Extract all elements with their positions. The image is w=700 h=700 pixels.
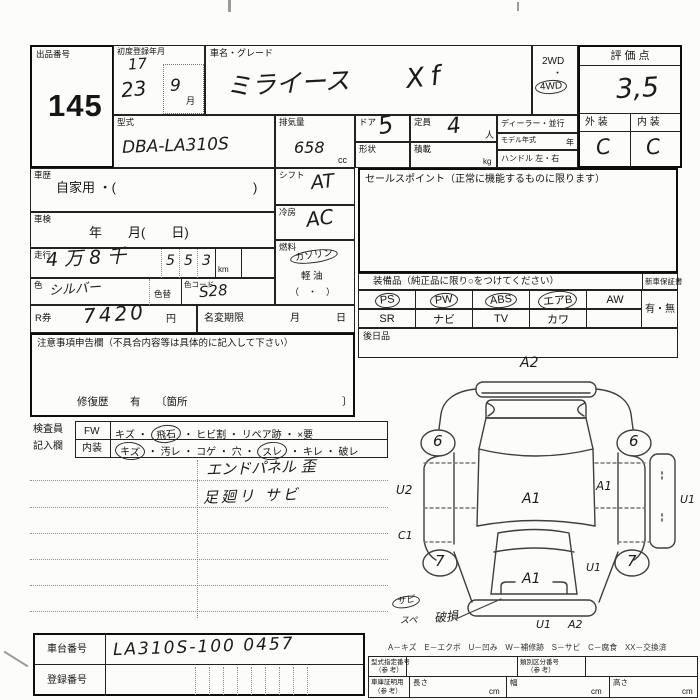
- mileage-digit-3: 3: [202, 254, 211, 268]
- first-registration-year: 23: [120, 78, 147, 101]
- interior-label: 内 装: [637, 117, 660, 128]
- capacity-cell: 定員 4 人: [410, 115, 497, 142]
- divider: [265, 667, 266, 695]
- inspector-label-2: 記入欄: [33, 441, 63, 452]
- fw-item: ヒビ割: [196, 430, 226, 441]
- load-cell: 積載 kg: [410, 142, 497, 168]
- equipment-label: 装備品（純正品に限り○をつけてください）: [373, 277, 559, 287]
- repair-location-close: 〕: [342, 397, 353, 409]
- type-designation-label: 型式指定番号: [371, 659, 410, 666]
- history-value: 自家用 ・(: [56, 181, 116, 195]
- interior-item: 穴: [232, 447, 242, 458]
- divider: [506, 676, 507, 698]
- diagram-wheel-rear-left: 7: [435, 554, 445, 569]
- divider: [237, 667, 238, 695]
- repair-history-value: 有: [130, 397, 141, 409]
- divider: [580, 65, 680, 66]
- divider: [517, 657, 518, 676]
- capacity-value: 4: [446, 115, 462, 138]
- history-label: 車歴: [34, 171, 51, 180]
- interior-grade: C: [645, 136, 662, 159]
- load-label: 積載: [414, 145, 431, 154]
- divider: [251, 667, 252, 695]
- mileage-handwritten: 4万8千: [46, 247, 133, 270]
- divider: [293, 667, 294, 695]
- load-unit: kg: [483, 158, 491, 167]
- diagram-note-under: スペ: [400, 617, 417, 626]
- garage-certificate-label: 車庫証明用: [371, 679, 404, 686]
- dealer-cell: ディーラー・並行: [497, 115, 578, 133]
- divider: [105, 635, 106, 696]
- later-items-box: 後日品: [358, 328, 678, 358]
- dealer-label: ディーラー・並行: [501, 120, 564, 129]
- shape-label: 形状: [359, 145, 376, 154]
- note-column-divider: [197, 460, 198, 618]
- ac-cell: 冷房 AC: [275, 205, 355, 240]
- displacement-label: 排気量: [279, 118, 305, 127]
- item-separator: ・: [290, 447, 300, 458]
- chassis-number-value: LA310S-100 0457: [113, 636, 295, 659]
- car-name: ミライース: [225, 68, 350, 99]
- color-cell: 色 シルバー 色替 色コード S28: [30, 278, 275, 305]
- car-outline-drawing: [388, 356, 700, 644]
- equipment-cell: エアB: [530, 291, 587, 309]
- handle-cell: ハンドル 左・右: [497, 150, 578, 168]
- shift-value: AT: [310, 172, 335, 193]
- equipment-sr: SR: [359, 310, 416, 328]
- diagram-label-u1-right: U1: [680, 494, 695, 505]
- equipment-pw-circled: PW: [430, 291, 459, 308]
- capacity-unit: 人: [485, 131, 494, 141]
- interior-row-label: 内装: [82, 443, 102, 454]
- car-damage-diagram: A2 6 6 U2 A1 U1 A1 C1 7 7 U1 A1 サビ スペ 破損…: [388, 356, 700, 644]
- divider: [630, 113, 631, 167]
- equipment-aw: AW: [606, 294, 623, 306]
- fw-item: ×要: [297, 430, 313, 441]
- exterior-label: 外 装: [585, 117, 608, 128]
- car-name-label: 車名・グレード: [210, 49, 273, 59]
- width-label: 幅: [510, 679, 518, 687]
- grade: Xf: [405, 62, 448, 93]
- diagram-label-u1-bottom: U1: [536, 619, 551, 630]
- equipment-cell: PS: [359, 291, 416, 309]
- shaken-label: 車検: [34, 215, 51, 224]
- shaken-cell: 車検 年 月( 日): [30, 212, 275, 248]
- shift-label: シフト: [279, 171, 305, 180]
- color-code-value: S28: [198, 283, 228, 300]
- note-line: [30, 611, 388, 612]
- item-separator: ・: [229, 430, 239, 441]
- repair-location-open: 〔箇所: [156, 397, 188, 409]
- interior-item: 破レ: [338, 447, 358, 458]
- item-separator: ・: [183, 430, 193, 441]
- score-label: 評 価 点: [580, 50, 680, 62]
- diagram-damage-note: 破損: [433, 610, 458, 624]
- divider: [223, 667, 224, 695]
- mileage-digit-1: 5: [166, 254, 175, 268]
- equipment-header-row: 装備品（純正品に限り○をつけてください） 新車保証書: [358, 273, 678, 290]
- fuel-cell: 燃料 ガソリン 軽 油 （ ・ ）: [275, 240, 355, 305]
- model-year-unit: 年: [566, 139, 574, 148]
- fw-item: リペア跡: [242, 430, 282, 441]
- interior-item-circled: キズ: [114, 441, 145, 462]
- fuel-label: 燃料: [279, 243, 296, 252]
- shaken-value: 年 月( 日): [89, 226, 189, 240]
- divider: [161, 249, 162, 278]
- capacity-label: 定員: [414, 118, 431, 127]
- auction-number-label: 出品番号: [36, 50, 70, 59]
- name-change-cell: 名変期限 月 日: [197, 305, 355, 333]
- model-label: 型式: [117, 118, 134, 127]
- equipment-leather: カワ: [530, 310, 587, 328]
- doors-value: 5: [376, 112, 395, 138]
- caution-box: 注意事項申告欄（不具合内容等は具体的に記入して下さい） 修復歴 有 〔箇所 〕: [30, 333, 355, 417]
- equipment-row-2: SR ナビ TV カワ: [358, 309, 642, 328]
- diagram-label-a1-right: A1: [596, 480, 612, 492]
- drive-separator: ・: [553, 69, 562, 79]
- divider: [279, 667, 280, 695]
- equipment-cell: PW: [416, 291, 473, 309]
- score-box: 評 価 点 3,5 外 装 内 装 C C: [578, 45, 682, 168]
- divider: [215, 249, 216, 278]
- divider: [110, 422, 111, 458]
- scan-mark: [517, 2, 519, 11]
- handle-label: ハンドル 左・右: [501, 155, 559, 164]
- sales-point-label: セールスポイント（正常に機能するものに限ります）: [365, 174, 605, 185]
- height-unit: cm: [682, 688, 693, 697]
- first-registration-month-box: 9 月: [163, 64, 204, 114]
- caution-header: 注意事項申告欄（不具合内容等は具体的に記入して下さい）: [37, 339, 293, 349]
- item-separator: ・: [219, 447, 229, 458]
- divider: [209, 667, 210, 695]
- fw-label: FW: [84, 426, 100, 437]
- name-change-label: 名変期限: [204, 313, 244, 324]
- first-registration-note: 17: [128, 56, 148, 72]
- color-label: 色: [34, 281, 43, 290]
- reference-note: （参 考）: [374, 688, 402, 695]
- fuel-paren: （ ・ ）: [290, 288, 335, 298]
- score-value: 3,5: [615, 74, 659, 103]
- doors-label: ドア: [359, 118, 376, 127]
- inspector-box: FW キズ ・ 飛石 ・ ヒビ割 ・ リペア跡 ・ ×要 内装 キズ ・ 汚レ …: [75, 421, 388, 458]
- note-line: [30, 480, 388, 481]
- length-label: 長さ: [413, 679, 428, 687]
- divider: [181, 279, 182, 305]
- car-name-cell: 車名・グレード ミライース Xf: [205, 45, 532, 115]
- reference-table: 型式指定番号 （参 考） 類別区分番号 （参 考） 車庫証明用 （参 考） 長さ…: [368, 656, 698, 698]
- shift-cell: シフト AT: [275, 168, 355, 205]
- equipment-ps-circled: PS: [374, 291, 400, 308]
- diagram-label-c1: C1: [398, 530, 413, 541]
- diagram-wheel-rear-right: 7: [627, 554, 637, 569]
- scan-mark: [228, 0, 231, 12]
- model-year-cell: モデル年式 年: [497, 133, 578, 150]
- exterior-grade: C: [595, 136, 612, 159]
- first-registration-month: 9: [170, 78, 181, 95]
- scan-mark: [4, 651, 29, 668]
- equipment-row-1: PS PW ABS エアB AW: [358, 290, 642, 309]
- chassis-number-label: 車台番号: [47, 644, 87, 655]
- divider: [35, 664, 363, 665]
- auction-number-box: 出品番号 145: [30, 45, 114, 168]
- item-separator: ・: [138, 430, 148, 441]
- registration-number-label: 登録番号: [47, 675, 87, 686]
- width-unit: cm: [591, 688, 602, 697]
- divider: [585, 657, 586, 676]
- recycle-ticket-cell: R券 7420 円: [30, 305, 197, 333]
- inspector-note-2: 足廻リ サビ: [203, 487, 301, 505]
- model-cell: 型式 DBA-LA310S: [113, 115, 275, 168]
- divider: [409, 676, 410, 698]
- equipment-empty-cell: [587, 310, 643, 328]
- drive-2wd: 2WD: [542, 56, 564, 67]
- diagram-label-u2: U2: [396, 484, 412, 496]
- recycle-ticket-amount: 7420: [82, 302, 146, 326]
- equipment-navi: ナビ: [416, 310, 473, 328]
- auction-sheet: 出品番号 145 初度登録年月 17 23 9 月 車名・グレード ミライース …: [0, 0, 700, 700]
- equipment-cell: ABS: [473, 291, 530, 309]
- height-label: 高さ: [613, 679, 628, 687]
- damage-code-legend: A－キズ E－エクボ U－凹み W－補修跡 S－サビ C－腐食 XX－交換済: [388, 644, 667, 653]
- diagram-label-a2-top: A2: [520, 356, 538, 370]
- divider: [197, 249, 198, 278]
- divider: [642, 274, 643, 290]
- fw-item: キズ: [115, 430, 135, 441]
- reference-note: （参 考）: [375, 667, 403, 674]
- later-items-label: 後日品: [363, 332, 390, 342]
- diagram-label-a2-bottom: A2: [568, 619, 583, 630]
- chassis-table: 車台番号 LA310S-100 0457 登録番号: [33, 633, 365, 696]
- displacement-cell: 排気量 658 cc: [275, 115, 355, 168]
- drive-4wd-circled: 4WD: [535, 79, 568, 95]
- ac-value: AC: [305, 206, 335, 230]
- fw-items: キズ ・ 飛石 ・ ヒビ割 ・ リペア跡 ・ ×要: [115, 425, 313, 443]
- note-line: [30, 559, 388, 560]
- recycle-ticket-label: R券: [35, 314, 51, 324]
- shape-cell: 形状: [355, 142, 410, 168]
- inspector-note-1: エンドパネル 歪: [206, 459, 316, 478]
- diagram-label-a1-rear: A1: [522, 572, 540, 586]
- divider: [149, 279, 150, 305]
- auction-number: 145: [48, 89, 103, 123]
- divider: [179, 249, 180, 278]
- sales-point-box: セールスポイント（正常に機能するものに限ります）: [358, 168, 678, 273]
- displacement-unit: cc: [338, 156, 347, 166]
- item-separator: ・: [326, 447, 336, 458]
- divider: [609, 676, 610, 698]
- divider: [580, 131, 680, 132]
- mileage-digit-2: 5: [184, 254, 193, 268]
- note-line: [30, 507, 388, 508]
- equipment-abs-circled: ABS: [484, 291, 517, 309]
- warranty-value: 有・無: [645, 304, 675, 315]
- displacement-value: 658: [294, 140, 325, 156]
- diagram-wheel-front-right: 6: [629, 434, 639, 449]
- classification-label: 類別区分番号: [520, 659, 559, 666]
- month-unit: 月: [186, 97, 195, 107]
- first-registration-cell: 初度登録年月 17 23 9 月: [113, 45, 205, 115]
- model-code: DBA-LA310S: [122, 136, 229, 157]
- history-close: ): [253, 181, 257, 195]
- interior-item: コゲ: [196, 447, 216, 458]
- mileage-cell: 走行 4万8千 5 5 3 km: [30, 248, 275, 278]
- note-line: [30, 585, 388, 586]
- divider: [195, 667, 196, 695]
- diagram-wheel-front-left: 6: [433, 434, 443, 449]
- diagram-label-a1-center: A1: [522, 492, 540, 506]
- warranty-label: 新車保証書: [645, 278, 683, 286]
- interior-item: 汚レ: [161, 447, 181, 458]
- recycle-ticket-unit: 円: [166, 314, 176, 325]
- divider: [369, 676, 697, 677]
- color-change-label: 色替: [154, 290, 171, 299]
- mileage-unit: km: [218, 266, 229, 275]
- fuel-gasoline-circled: ガソリン: [289, 247, 338, 267]
- item-separator: ・: [244, 447, 254, 458]
- name-change-day: 日: [336, 313, 346, 324]
- repair-history-label: 修復歴: [77, 397, 109, 409]
- warranty-value-cell: 有・無: [641, 290, 678, 328]
- item-separator: ・: [183, 447, 193, 458]
- length-unit: cm: [489, 688, 500, 697]
- model-year-label: モデル年式: [501, 137, 536, 145]
- ac-label: 冷房: [279, 208, 296, 217]
- equipment-tv: TV: [473, 310, 530, 328]
- inspector-label-1: 検査員: [33, 424, 63, 435]
- divider: [241, 249, 242, 278]
- item-separator: ・: [148, 447, 158, 458]
- equipment-airbag-circled: エアB: [538, 289, 579, 311]
- reference-note: （参 考）: [527, 667, 555, 674]
- history-cell: 車歴 自家用 ・( ): [30, 168, 275, 212]
- drive-type-cell: 2WD ・ 4WD: [532, 45, 578, 115]
- diagram-label-u1-mid: U1: [586, 562, 601, 573]
- fuel-diesel: 軽 油: [301, 272, 323, 282]
- name-change-month: 月: [290, 313, 300, 324]
- note-line: [30, 533, 388, 534]
- item-separator: ・: [284, 430, 294, 441]
- equipment-cell: AW: [587, 291, 643, 309]
- divider: [307, 667, 308, 695]
- interior-items: キズ ・ 汚レ ・ コゲ ・ 穴 ・ スレ ・ キレ ・ 破レ: [115, 442, 358, 460]
- doors-cell: ドア 5: [355, 115, 410, 142]
- color-value: シルバー: [49, 281, 102, 298]
